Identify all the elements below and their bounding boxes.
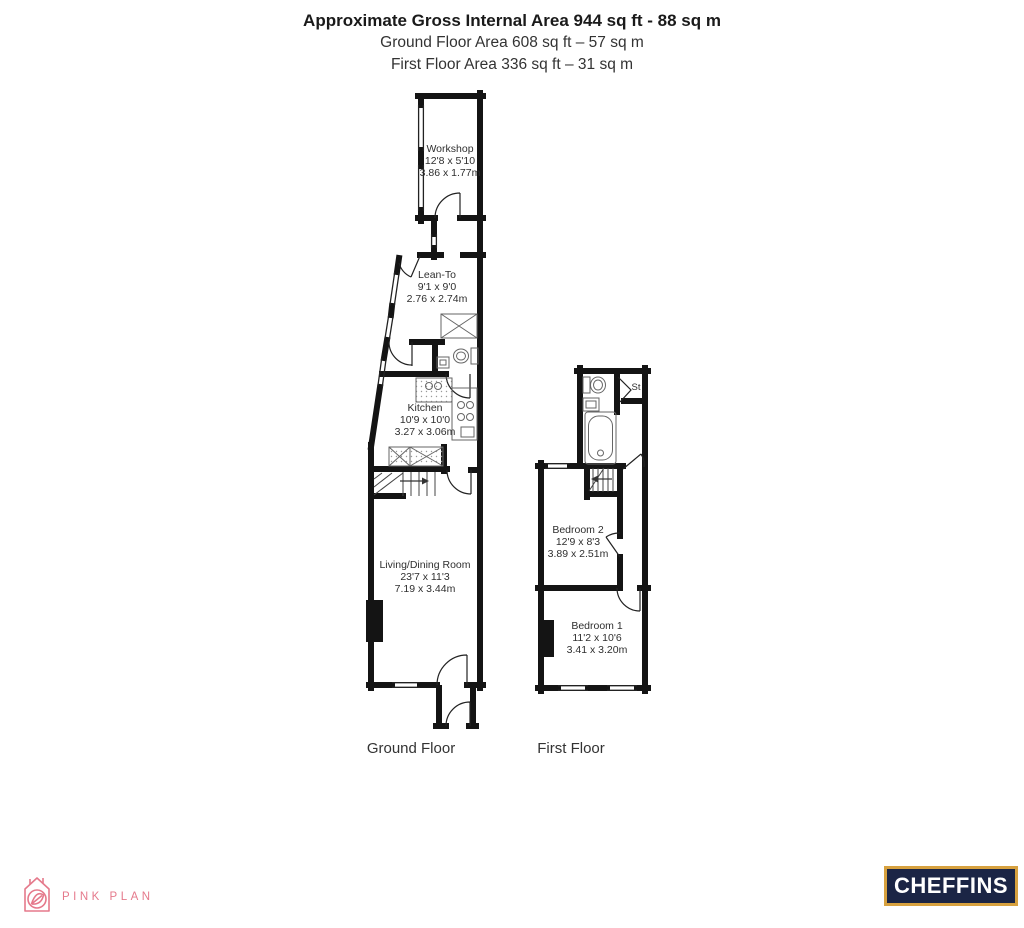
store-name: St xyxy=(632,382,641,393)
kitchen-metric: 3.27 x 3.06m xyxy=(395,426,456,438)
chimney-breast-first xyxy=(538,620,554,657)
ground-floor-fixtures xyxy=(389,314,478,466)
door-leanto-lobby xyxy=(389,342,412,366)
leanto-imperial: 9'1 x 9'0 xyxy=(418,281,457,293)
pink-plan-house-icon xyxy=(22,874,52,914)
living-metric: 7.19 x 3.44m xyxy=(395,583,456,595)
window-living-front xyxy=(392,683,420,688)
ground-floor-label: Ground Floor xyxy=(367,740,455,757)
floorplan-page: Approximate Gross Internal Area 944 sq f… xyxy=(0,0,1024,928)
door-leanto xyxy=(399,256,420,277)
kitchen-counter-right xyxy=(452,388,477,440)
stairs-arrow-ground xyxy=(422,478,429,485)
workshop-name: Workshop xyxy=(426,143,473,155)
sink-icon-first xyxy=(583,398,599,411)
bedroom2-imperial: 12'9 x 8'3 xyxy=(556,536,600,548)
stairs-first xyxy=(589,468,613,492)
door-landing xyxy=(623,454,644,469)
window-workshop-upper xyxy=(419,105,424,151)
living-imperial: 23'7 x 11'3 xyxy=(400,571,450,583)
living-name: Living/Dining Room xyxy=(379,559,470,571)
bedroom1-imperial: 11'2 x 10'6 xyxy=(572,632,622,644)
chimney-breast-ground xyxy=(366,600,383,642)
bath-icon xyxy=(585,412,616,464)
window-bedroom1-left xyxy=(558,686,588,691)
door-workshop xyxy=(435,193,460,218)
toilet-icon-first xyxy=(583,377,606,393)
cheffins-text: CHEFFINS xyxy=(894,873,1008,899)
door-front-entrance xyxy=(446,702,470,726)
first-floor-labels: St Bedroom 2 12'9 x 8'3 3.89 x 2.51m Bed… xyxy=(537,382,641,757)
pink-plan-text: PINK PLAN xyxy=(62,891,154,903)
bedroom2-metric: 3.89 x 2.51m xyxy=(548,548,609,560)
kitchen-counter-top xyxy=(416,378,452,402)
kitchen-counter-bottom xyxy=(389,447,443,466)
bedroom1-metric: 3.41 x 3.20m xyxy=(567,644,628,656)
window-leanto-1 xyxy=(390,272,399,307)
skylight-box-icon xyxy=(441,314,477,338)
window-leanto-2 xyxy=(385,315,393,341)
ground-floor-plan: Workshop 12'8 x 5'10 3.86 x 1.77m Lean-T… xyxy=(366,93,483,757)
first-floor-fixtures xyxy=(583,377,616,464)
pink-plan-logo: PINK PLAN xyxy=(22,874,154,914)
first-floor-label: First Floor xyxy=(537,740,605,757)
leanto-metric: 2.76 x 2.74m xyxy=(407,293,468,305)
window-bedroom2 xyxy=(545,464,570,469)
door-kitchen-living xyxy=(447,470,471,494)
stairs-ground xyxy=(374,472,435,496)
bedroom1-name: Bedroom 1 xyxy=(571,620,623,632)
basin-icon-ground xyxy=(437,357,449,368)
bedroom2-name: Bedroom 2 xyxy=(552,524,604,536)
kitchen-name: Kitchen xyxy=(407,402,442,414)
workshop-imperial: 12'8 x 5'10 xyxy=(425,155,475,167)
cheffins-logo: CHEFFINS xyxy=(884,866,1018,906)
workshop-metric: 3.86 x 1.77m xyxy=(420,167,481,179)
door-bedroom1 xyxy=(617,588,640,611)
leanto-name: Lean-To xyxy=(418,269,456,281)
first-floor-plan: St Bedroom 2 12'9 x 8'3 3.89 x 2.51m Bed… xyxy=(537,368,648,757)
kitchen-imperial: 10'9 x 10'0 xyxy=(400,414,450,426)
door-living-porch xyxy=(437,655,467,685)
window-bedroom1-right xyxy=(607,686,637,691)
stairs-arrow-first xyxy=(591,476,598,483)
floorplan-drawing: Workshop 12'8 x 5'10 3.86 x 1.77m Lean-T… xyxy=(0,0,1024,928)
first-floor-windows xyxy=(545,464,637,691)
toilet-icon-ground xyxy=(454,348,479,364)
